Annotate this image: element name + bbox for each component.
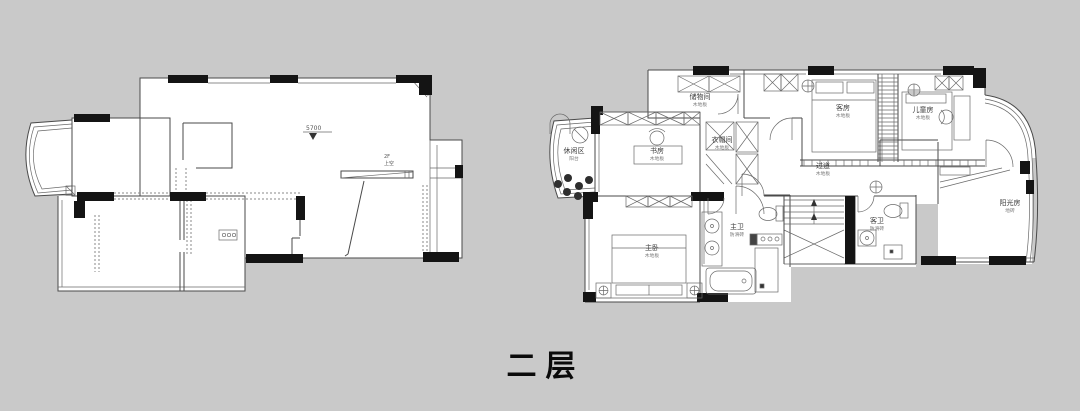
right-floor-plan <box>550 66 1038 302</box>
floor-plan-page: 5700 2F 上空 <box>0 0 1080 411</box>
stair-note-line1: 2F <box>384 154 390 160</box>
floor-title: 二层 <box>498 341 585 385</box>
left-plan-rooms <box>26 78 462 291</box>
right-plan-rooms <box>550 70 1036 302</box>
stair-note-line2: 上空 <box>384 160 394 167</box>
level-marker-text: 5700 <box>306 125 321 132</box>
left-floor-plan: 5700 2F 上空 <box>26 75 463 291</box>
ladder-hatch <box>878 78 898 158</box>
